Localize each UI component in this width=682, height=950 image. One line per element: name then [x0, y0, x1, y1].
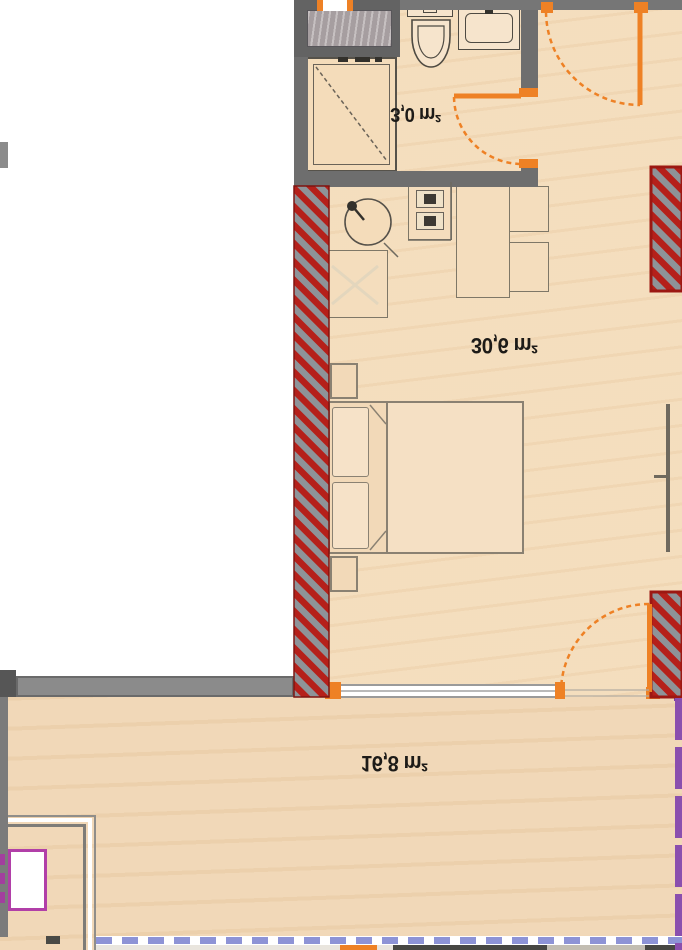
bathroom-door-swing-icon: [454, 97, 521, 164]
insulated-wall: [294, 186, 329, 697]
insulated-wall: [651, 167, 682, 291]
entrance-door-swing-icon: [546, 12, 640, 105]
living-room-area-label: 30,6 m²: [471, 332, 538, 358]
duvet-fold: [370, 531, 386, 550]
floor-plan: 3,0 m² 30,6 m² 16,8 m²: [0, 0, 682, 950]
plan-overlay: [0, 0, 682, 950]
shower-diagonal: [316, 67, 387, 161]
bathroom-area-label: 3,0 m²: [390, 102, 440, 125]
counter-edge: [384, 243, 398, 257]
terrace-area-label: 16,8 m²: [361, 750, 428, 776]
insulated-wall: [651, 592, 682, 697]
terrace-door-swing-icon: [561, 604, 649, 692]
duvet-fold: [370, 405, 386, 424]
